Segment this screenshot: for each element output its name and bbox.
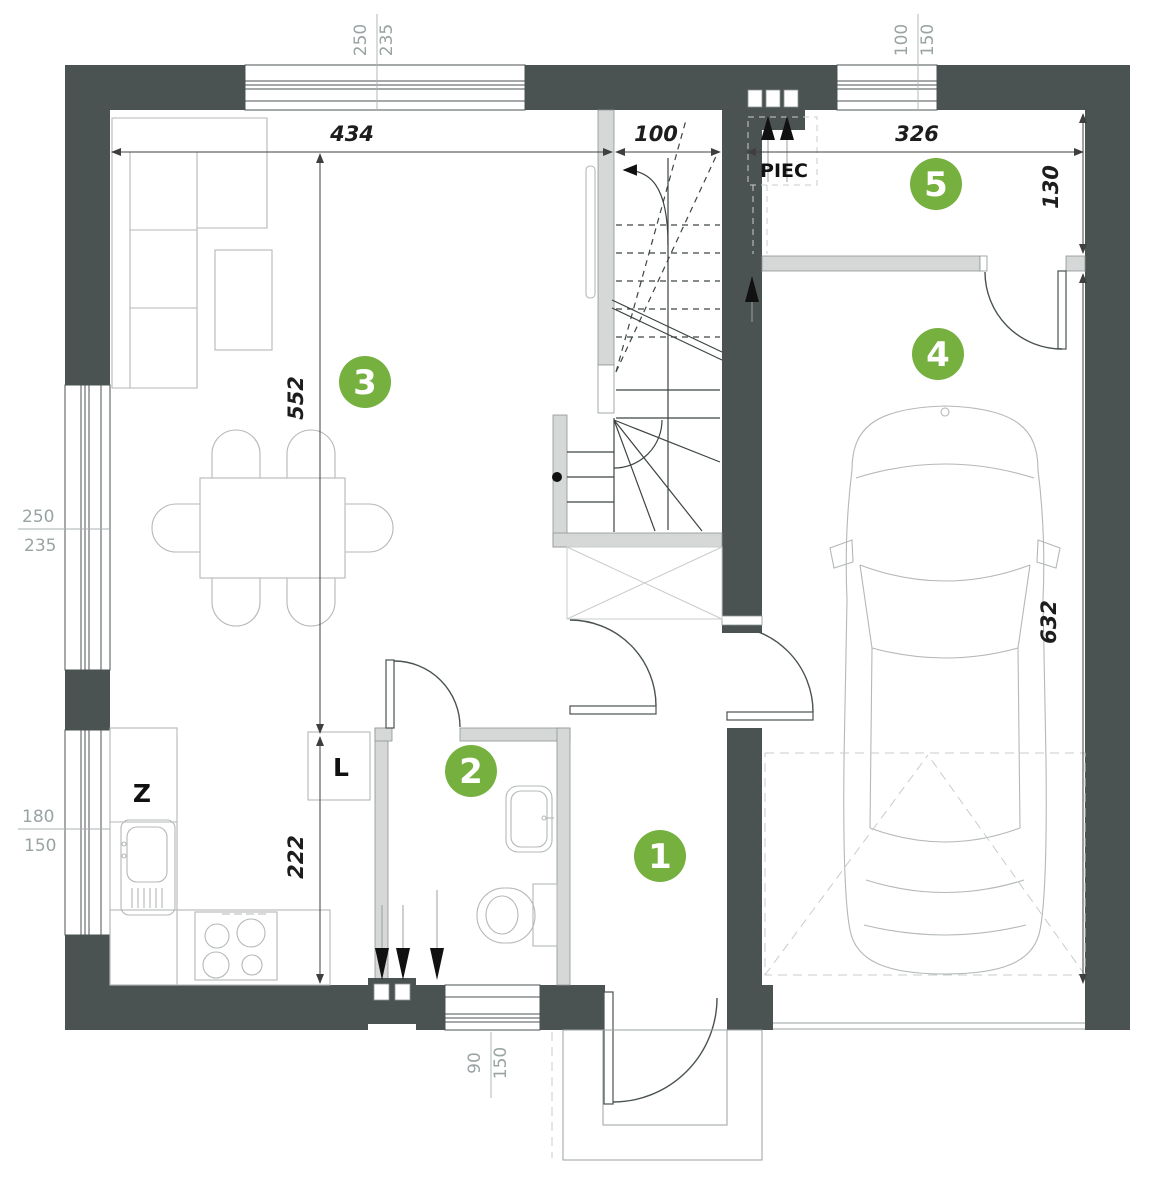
floor-plan: 434 100 326 130 632 552 222 250 235 100 … <box>0 0 1164 1192</box>
winder-fan <box>614 420 720 531</box>
chair <box>287 430 335 478</box>
bath-wall-right <box>557 728 570 985</box>
dim-kitchen-height: 222 <box>284 835 308 879</box>
window-top-living <box>245 65 525 110</box>
wall-hall-garage-upper <box>722 110 762 633</box>
wall-hall-garage-lower <box>727 728 762 985</box>
wall-right <box>1085 65 1130 1030</box>
window-dim-value: 235 <box>377 24 397 56</box>
kitchen-sink <box>121 820 175 915</box>
garage-door-line <box>773 1023 1085 1029</box>
chair <box>212 578 260 626</box>
windows <box>65 65 937 1030</box>
dim-living-width: 434 <box>329 122 374 146</box>
car-emblem <box>941 408 949 416</box>
dim-living-height: 552 <box>284 376 308 420</box>
car <box>830 406 1060 974</box>
sink-cabinet-label: Z <box>133 779 151 808</box>
radiator <box>586 166 595 298</box>
winder-arc <box>614 420 662 468</box>
furniture <box>110 118 557 985</box>
text-labels: PIEC Z L <box>133 160 808 808</box>
window-dim-value: 180 <box>22 807 54 827</box>
wall-bottom-pier-right <box>727 985 773 1030</box>
understair-storage <box>567 547 722 619</box>
porch-outer <box>563 1030 762 1160</box>
window-dim-value: 150 <box>918 24 938 56</box>
wall-bottom-seg <box>416 985 445 1030</box>
car-body <box>844 406 1047 974</box>
room-badge-3: 3 <box>339 356 391 408</box>
room-badge-1: 1 <box>634 830 686 882</box>
bathroom-fixtures <box>477 786 557 946</box>
room-badge-5: 5 <box>910 158 962 210</box>
bathroom-door <box>386 660 460 728</box>
room-number: 2 <box>459 752 483 792</box>
washbasin <box>506 786 554 852</box>
window-dim-value: 150 <box>491 1047 511 1079</box>
window-left-upper <box>65 385 110 670</box>
window-dim-value: 150 <box>24 836 56 856</box>
car-roof <box>870 648 1020 842</box>
dim-stair-width: 100 <box>634 122 678 146</box>
wall-left-pier <box>65 670 110 730</box>
stove <box>195 912 277 980</box>
car-hood-line <box>856 464 1034 478</box>
furnace-label: PIEC <box>760 160 808 182</box>
chimney-top <box>743 85 805 130</box>
divider-door-stub <box>1066 256 1085 271</box>
winder-treads-left <box>567 452 614 502</box>
down-arrow-icon <box>430 948 444 980</box>
bath-wall-top-corner <box>375 728 392 741</box>
garage-door-jamb-cap <box>722 616 762 625</box>
window-top-right <box>837 65 937 110</box>
tall-cabinet-label: L <box>333 753 349 782</box>
garage-driveway-marking <box>765 753 1085 975</box>
wall-bottom-left <box>65 985 368 1030</box>
floor-plan-drawing: 434 100 326 130 632 552 222 250 235 100 … <box>0 0 1164 1192</box>
kitchen <box>110 728 370 985</box>
chair <box>345 504 393 552</box>
chair <box>287 578 335 626</box>
window-dim-value: 235 <box>24 536 56 556</box>
window-dim-value: 250 <box>22 507 54 527</box>
car-mirrors <box>830 540 1060 568</box>
divider-end-cap <box>980 256 987 271</box>
entry-door <box>604 992 717 1104</box>
porch-inner <box>603 1030 727 1125</box>
living-hall-door <box>570 620 656 714</box>
dim-room5-width: 326 <box>895 122 939 146</box>
down-arrow-icon <box>396 948 410 980</box>
car-windshield <box>860 565 1030 658</box>
hall-garage-door <box>727 626 813 720</box>
window-dim-value: 250 <box>351 24 371 56</box>
room-number: 1 <box>648 837 672 877</box>
room-number: 4 <box>926 335 950 375</box>
storage-wall-bottom <box>553 533 722 547</box>
room5-garage-divider <box>762 256 980 271</box>
dim-room5-height: 130 <box>1039 165 1063 209</box>
corner-sofa <box>112 118 267 388</box>
window-bottom-bath <box>445 985 540 1030</box>
room-number: 3 <box>353 363 377 403</box>
dining-table <box>200 478 345 578</box>
room-badge-2: 2 <box>445 745 497 797</box>
wall-left-upper <box>65 65 110 385</box>
toilet <box>477 884 557 946</box>
window-dim-value: 90 <box>465 1052 485 1074</box>
dining-set <box>152 430 393 626</box>
bath-wall-top <box>460 728 570 741</box>
window-left-lower <box>65 730 110 935</box>
room5-garage-door <box>985 271 1066 349</box>
stair-rail-end <box>598 365 614 413</box>
chimney-bottom <box>368 978 416 1024</box>
car-rear <box>864 880 1026 935</box>
room-number: 5 <box>924 165 948 205</box>
porch <box>552 1030 762 1160</box>
wall-bottom-pier-left <box>540 985 605 1030</box>
window-dim-value: 100 <box>892 24 912 56</box>
chair <box>152 504 200 552</box>
stair-rail-wall <box>598 110 614 365</box>
window-dim-bottom: 90 150 <box>465 1032 511 1098</box>
coffee-table <box>215 250 272 350</box>
dim-garage-height: 632 <box>1037 600 1061 644</box>
chair <box>212 430 260 478</box>
newel-post-dot <box>552 472 562 482</box>
room-badge-4: 4 <box>912 328 964 380</box>
